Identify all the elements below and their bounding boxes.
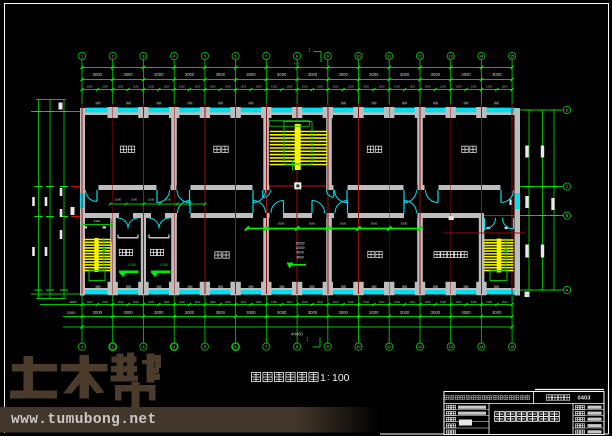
- svg-text:1500: 1500: [394, 84, 400, 88]
- svg-text:9: 9: [327, 55, 329, 59]
- svg-text:1500: 1500: [225, 84, 231, 88]
- svg-text:12000: 12000: [295, 246, 304, 250]
- svg-text::: :: [327, 372, 330, 382]
- svg-text:1500: 1500: [210, 84, 216, 88]
- svg-text:5: 5: [204, 345, 206, 349]
- svg-text:3000: 3000: [308, 310, 318, 315]
- svg-text:3000: 3000: [246, 310, 256, 315]
- svg-text:1500: 1500: [102, 300, 108, 304]
- svg-text:2: 2: [112, 345, 114, 349]
- svg-text:A: A: [566, 289, 569, 293]
- svg-text:3000: 3000: [93, 72, 103, 77]
- svg-text:7: 7: [265, 55, 267, 59]
- svg-text:1500: 1500: [332, 300, 338, 304]
- svg-text:7: 7: [265, 345, 267, 349]
- svg-text:1500: 1500: [394, 300, 400, 304]
- svg-text:1500: 1500: [440, 84, 446, 88]
- svg-text:13: 13: [449, 55, 453, 59]
- svg-text:3000: 3000: [154, 310, 164, 315]
- svg-text:3000: 3000: [492, 310, 502, 315]
- svg-text:1500: 1500: [271, 84, 277, 88]
- svg-text:-0.020: -0.020: [159, 263, 168, 267]
- svg-text:1500: 1500: [131, 198, 138, 202]
- svg-text:3: 3: [142, 345, 144, 349]
- svg-text:4: 4: [173, 345, 175, 349]
- svg-text:3000: 3000: [369, 72, 379, 77]
- svg-text:9: 9: [327, 345, 329, 349]
- svg-text:13: 13: [449, 345, 453, 349]
- svg-text:1500: 1500: [256, 300, 262, 304]
- svg-text:1500: 1500: [332, 84, 338, 88]
- svg-text:3000: 3000: [338, 72, 348, 77]
- svg-text:1500: 1500: [317, 300, 323, 304]
- svg-text:1500: 1500: [348, 300, 354, 304]
- svg-text:3000: 3000: [93, 310, 103, 315]
- svg-text:3000: 3000: [338, 310, 348, 315]
- svg-text:1500: 1500: [164, 300, 170, 304]
- svg-text:1500: 1500: [425, 300, 431, 304]
- svg-text:1500: 1500: [194, 300, 200, 304]
- svg-text:1800: 1800: [70, 300, 77, 304]
- svg-text:4: 4: [173, 55, 175, 59]
- svg-text:4500: 4500: [296, 255, 304, 259]
- svg-text:1500: 1500: [87, 84, 93, 88]
- svg-text:14: 14: [479, 345, 483, 349]
- svg-text:1: 1: [320, 372, 326, 384]
- svg-text:1500: 1500: [148, 300, 154, 304]
- svg-text:44400: 44400: [291, 332, 303, 337]
- svg-text:100: 100: [332, 372, 350, 384]
- svg-text:3000: 3000: [154, 72, 164, 77]
- svg-text:3: 3: [142, 55, 144, 59]
- svg-text:10: 10: [356, 55, 360, 59]
- svg-text:3000: 3000: [278, 221, 285, 225]
- svg-text:3000: 3000: [309, 221, 316, 225]
- svg-text:1500: 1500: [194, 84, 200, 88]
- svg-text:3000: 3000: [123, 310, 133, 315]
- svg-text:11: 11: [387, 345, 391, 349]
- svg-text:3000: 3000: [216, 310, 226, 315]
- svg-text:www.tumubong.net: www.tumubong.net: [11, 412, 157, 428]
- svg-text:1500: 1500: [286, 300, 292, 304]
- svg-text:1500: 1500: [117, 300, 123, 304]
- svg-text:3000: 3000: [461, 310, 471, 315]
- svg-text:1500: 1500: [363, 84, 369, 88]
- svg-text:3000: 3000: [277, 310, 287, 315]
- svg-text:1500: 1500: [240, 300, 246, 304]
- svg-text:1500: 1500: [501, 84, 507, 88]
- svg-text:15000: 15000: [295, 242, 304, 246]
- svg-text:1500: 1500: [210, 300, 216, 304]
- svg-text:4500: 4500: [294, 62, 301, 66]
- svg-text:1500: 1500: [256, 84, 262, 88]
- svg-text:1500: 1500: [148, 198, 155, 202]
- svg-text:14: 14: [479, 55, 483, 59]
- svg-text:12: 12: [418, 55, 422, 59]
- svg-text:2: 2: [112, 55, 114, 59]
- svg-text:1500: 1500: [302, 300, 308, 304]
- svg-text:3000: 3000: [216, 72, 226, 77]
- svg-text:1500: 1500: [363, 300, 369, 304]
- svg-text:1: 1: [306, 337, 309, 343]
- svg-text:1500: 1500: [455, 84, 461, 88]
- svg-text:B: B: [566, 214, 569, 218]
- svg-text:1500: 1500: [501, 300, 507, 304]
- svg-text:3000: 3000: [340, 221, 347, 225]
- svg-text:6: 6: [235, 55, 237, 59]
- svg-text:15: 15: [510, 345, 514, 349]
- svg-text:1500: 1500: [225, 300, 231, 304]
- svg-text:1500: 1500: [471, 300, 477, 304]
- svg-text:3000: 3000: [185, 310, 195, 315]
- svg-text:11: 11: [387, 55, 391, 59]
- svg-text:5: 5: [204, 55, 206, 59]
- svg-text:0403: 0403: [578, 396, 592, 402]
- svg-text:15: 15: [510, 55, 514, 59]
- svg-text:1500: 1500: [164, 84, 170, 88]
- svg-text:3000: 3000: [246, 72, 256, 77]
- svg-text:1500: 1500: [425, 84, 431, 88]
- svg-text:1500: 1500: [486, 84, 492, 88]
- svg-text:3000: 3000: [371, 221, 378, 225]
- svg-text:1500: 1500: [348, 84, 354, 88]
- svg-text:3000: 3000: [277, 72, 287, 77]
- svg-text:C: C: [566, 185, 569, 189]
- svg-text:1500: 1500: [240, 84, 246, 88]
- svg-text:1: 1: [81, 345, 83, 349]
- svg-text:1500: 1500: [271, 300, 277, 304]
- svg-text:1500: 1500: [379, 84, 385, 88]
- svg-text:1500: 1500: [148, 84, 154, 88]
- svg-text:1500: 1500: [409, 84, 415, 88]
- svg-text:3000: 3000: [461, 72, 471, 77]
- svg-text:8: 8: [296, 345, 298, 349]
- svg-text:3000: 3000: [185, 72, 195, 77]
- svg-text:1500: 1500: [102, 84, 108, 88]
- svg-text:3000: 3000: [369, 310, 379, 315]
- svg-text:1500: 1500: [317, 84, 323, 88]
- svg-text:1: 1: [308, 48, 311, 54]
- svg-text:1500: 1500: [115, 198, 122, 202]
- svg-text:1500: 1500: [455, 300, 461, 304]
- svg-text:3000: 3000: [308, 72, 318, 77]
- svg-text:1500: 1500: [302, 84, 308, 88]
- svg-text:3000: 3000: [123, 72, 133, 77]
- svg-text:1500: 1500: [165, 198, 172, 202]
- svg-text:9000: 9000: [296, 251, 304, 255]
- svg-text:1500: 1500: [117, 84, 123, 88]
- svg-text:3000: 3000: [400, 72, 410, 77]
- svg-text:1500: 1500: [409, 300, 415, 304]
- svg-text:1500: 1500: [133, 84, 139, 88]
- svg-text:1500: 1500: [471, 84, 477, 88]
- svg-text:1500: 1500: [379, 300, 385, 304]
- svg-text:1500: 1500: [179, 84, 185, 88]
- svg-text:10: 10: [356, 345, 360, 349]
- svg-text:1500: 1500: [486, 300, 492, 304]
- svg-text:12: 12: [418, 345, 422, 349]
- svg-text:1500: 1500: [440, 300, 446, 304]
- svg-text:3000: 3000: [492, 72, 502, 77]
- svg-text:-0.020: -0.020: [127, 263, 136, 267]
- svg-text:3300: 3300: [94, 219, 101, 223]
- svg-text:8: 8: [296, 55, 298, 59]
- svg-text:3000: 3000: [431, 72, 441, 77]
- svg-text:1500: 1500: [133, 300, 139, 304]
- svg-text:6: 6: [235, 345, 237, 349]
- svg-text:1500: 1500: [286, 84, 292, 88]
- svg-text:3000: 3000: [401, 221, 408, 225]
- svg-text:1: 1: [81, 55, 83, 59]
- svg-text:3000: 3000: [400, 310, 410, 315]
- svg-text:3000: 3000: [431, 310, 441, 315]
- svg-text:1500: 1500: [87, 300, 93, 304]
- svg-text:3300: 3300: [67, 310, 77, 315]
- svg-text:1500: 1500: [179, 300, 185, 304]
- svg-text:D: D: [566, 109, 569, 113]
